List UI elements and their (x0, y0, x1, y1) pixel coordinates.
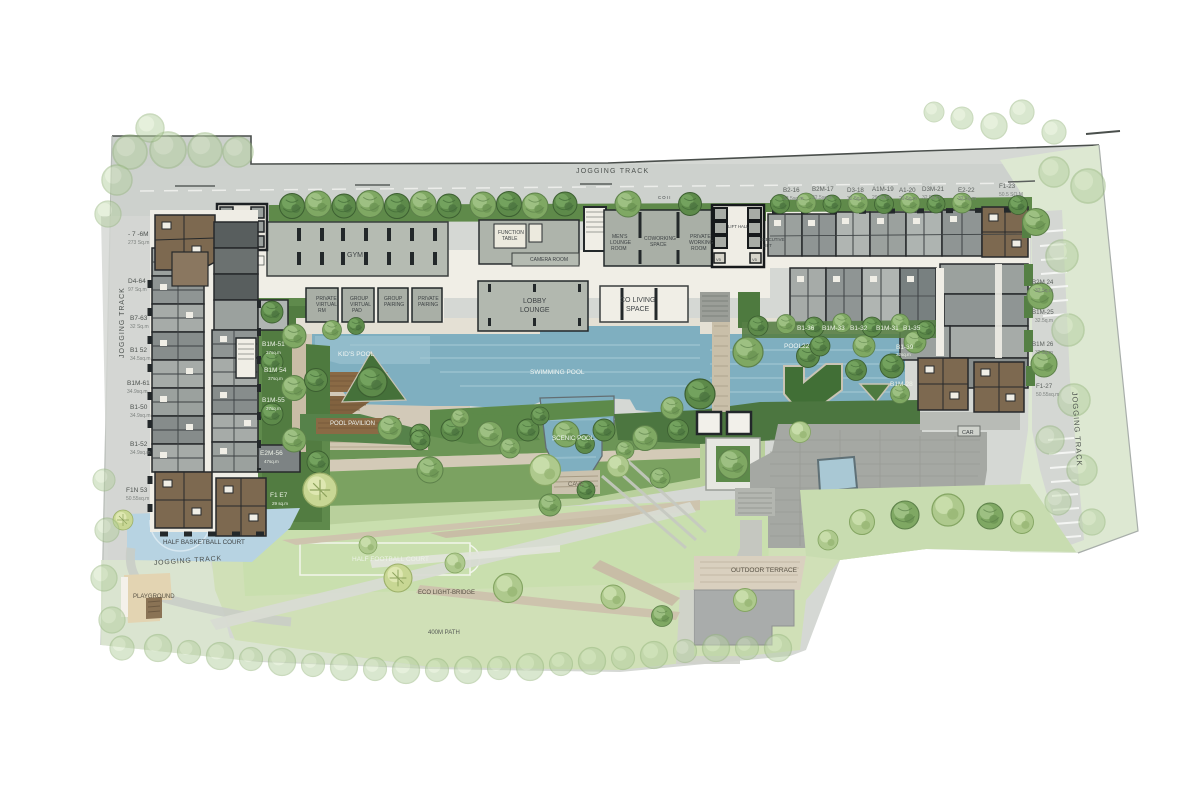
svg-text:97 Sq.m: 97 Sq.m (128, 287, 147, 293)
svg-text:32.5q.m: 32.5q.m (1035, 350, 1053, 356)
svg-text:SPACE: SPACE (626, 306, 650, 313)
svg-text:E2-22: E2-22 (958, 187, 975, 194)
svg-text:34.9sq.m: 34.9sq.m (130, 413, 151, 419)
svg-text:29 sq.m: 29 sq.m (272, 501, 288, 506)
svg-text:D3-18: D3-18 (847, 187, 864, 194)
svg-text:PAD: PAD (352, 308, 362, 314)
svg-text:ROOM: ROOM (611, 246, 627, 252)
svg-text:B1M-33: B1M-33 (822, 325, 845, 332)
svg-text:EXECUTIVE: EXECUTIVE (760, 237, 784, 242)
svg-text:34.9sq.m: 34.9sq.m (130, 450, 151, 456)
svg-text:D4-64: D4-64 (128, 278, 146, 285)
svg-text:CAMERA ROOM: CAMERA ROOM (530, 257, 568, 263)
svg-text:29.5q.m: 29.5q.m (899, 196, 917, 202)
svg-text:POOL22: POOL22 (784, 343, 810, 350)
svg-text:HALF FOOTBALL COURT: HALF FOOTBALL COURT (352, 556, 429, 563)
svg-text:JOGGING TRACK: JOGGING TRACK (119, 287, 126, 358)
svg-text:SWIMMING POOL: SWIMMING POOL (530, 369, 585, 376)
svg-text:CO LIVING: CO LIVING (620, 297, 655, 304)
svg-text:TABLE: TABLE (502, 236, 518, 242)
svg-text:B1-50: B1-50 (130, 404, 148, 411)
svg-text:F1-23: F1-23 (999, 183, 1016, 190)
svg-text:F1N 53: F1N 53 (126, 487, 148, 494)
svg-text:32.5q.m: 32.5q.m (958, 196, 976, 202)
svg-text:D3M-21: D3M-21 (922, 186, 945, 193)
svg-text:B1M 26: B1M 26 (1032, 341, 1054, 348)
svg-text:OUTDOOR TERRACE: OUTDOOR TERRACE (731, 567, 798, 574)
svg-text:32.5sq.m: 32.5sq.m (783, 196, 804, 202)
svg-text:34.5sq.m: 34.5sq.m (130, 356, 151, 362)
svg-text:50.55sq.m: 50.55sq.m (1036, 392, 1059, 398)
svg-text:HALF BASKETBALL COURT: HALF BASKETBALL COURT (163, 539, 245, 546)
svg-text:B2M-17: B2M-17 (812, 186, 834, 193)
svg-text:B1-36: B1-36 (797, 325, 815, 332)
svg-text:B1M-51: B1M-51 (262, 341, 285, 348)
svg-text:50.55sq.m: 50.55sq.m (126, 496, 149, 502)
svg-text:ROOM: ROOM (691, 246, 707, 252)
svg-text:LOUNGE: LOUNGE (520, 307, 550, 314)
svg-text:B1M-61: B1M-61 (127, 380, 150, 387)
svg-text:32.5q.m: 32.5q.m (1035, 288, 1053, 294)
svg-text:32.5q.m: 32.5q.m (1035, 318, 1053, 324)
svg-text:RM: RM (318, 308, 326, 314)
svg-text:A1-20: A1-20 (899, 187, 916, 194)
svg-text:CAR: CAR (962, 430, 974, 436)
svg-text:F1-27: F1-27 (1036, 383, 1053, 390)
svg-text:B2-16: B2-16 (783, 187, 800, 194)
svg-text:POOL PAVILION: POOL PAVILION (330, 421, 375, 427)
svg-text:GYM: GYM (347, 252, 363, 259)
svg-text:400M PATH: 400M PATH (428, 630, 460, 636)
svg-text:47sq.m: 47sq.m (264, 459, 279, 464)
svg-text:E2M-56: E2M-56 (260, 450, 283, 457)
svg-text:37sq.m: 37sq.m (268, 376, 283, 381)
svg-text:32.5sq.m: 32.5sq.m (812, 195, 833, 201)
svg-text:V5: V5 (752, 257, 758, 262)
svg-text:LOBBY: LOBBY (523, 298, 547, 305)
svg-text:B1M 54: B1M 54 (264, 367, 287, 374)
svg-text:37sq.m: 37sq.m (266, 350, 281, 355)
svg-text:ECO LIGHT-BRIDGE: ECO LIGHT-BRIDGE (418, 590, 475, 596)
svg-text:LIFT HALL: LIFT HALL (728, 224, 749, 229)
svg-text:B1-35: B1-35 (903, 325, 921, 332)
svg-text:29.5q.m: 29.5q.m (872, 195, 890, 201)
svg-text:PAIRING: PAIRING (418, 302, 438, 308)
svg-text:B1-39: B1-39 (896, 344, 914, 351)
svg-text:32sq.m: 32sq.m (896, 352, 911, 357)
svg-text:LIFT: LIFT (763, 243, 772, 248)
svg-text:B1M-55: B1M-55 (262, 397, 285, 404)
svg-text:32.5q.m: 32.5q.m (847, 196, 865, 202)
svg-text:B1M-28: B1M-28 (890, 381, 913, 388)
svg-text:37sq.m: 37sq.m (266, 406, 281, 411)
svg-text:F1 E7: F1 E7 (270, 492, 288, 499)
svg-text:B1M-25: B1M-25 (1032, 309, 1054, 316)
svg-text:B2M 24: B2M 24 (1032, 279, 1054, 286)
svg-text:32 Sq.m: 32 Sq.m (130, 324, 149, 330)
svg-text:SPACE: SPACE (650, 242, 667, 248)
svg-text:B1-52: B1-52 (130, 441, 148, 448)
svg-text:B7-63: B7-63 (130, 315, 148, 322)
svg-text:34.9sq.m: 34.9sq.m (127, 389, 148, 395)
svg-text:C O I I: C O I I (658, 195, 670, 200)
svg-text:273 Sq.m: 273 Sq.m (128, 240, 149, 246)
svg-text:CAVE: CAVE (568, 482, 584, 488)
svg-text:V5: V5 (716, 257, 722, 262)
svg-text:A1M-19: A1M-19 (872, 186, 894, 193)
svg-text:PLAYGROUND: PLAYGROUND (133, 594, 175, 600)
svg-text:B1M-31: B1M-31 (876, 325, 899, 332)
svg-text:32.5q.m: 32.5q.m (922, 195, 940, 201)
svg-text:50.5 SQ.M: 50.5 SQ.M (999, 192, 1023, 198)
svg-text:SCENIC POOL: SCENIC POOL (552, 435, 595, 442)
svg-text:- 7 -6M: - 7 -6M (128, 231, 149, 238)
svg-text:B1-32: B1-32 (850, 325, 868, 332)
svg-text:B1 52: B1 52 (130, 347, 147, 354)
svg-text:JOGGING TRACK: JOGGING TRACK (576, 168, 649, 175)
svg-text:KID'S POOL: KID'S POOL (338, 351, 375, 358)
svg-text:PAIRING: PAIRING (384, 302, 404, 308)
